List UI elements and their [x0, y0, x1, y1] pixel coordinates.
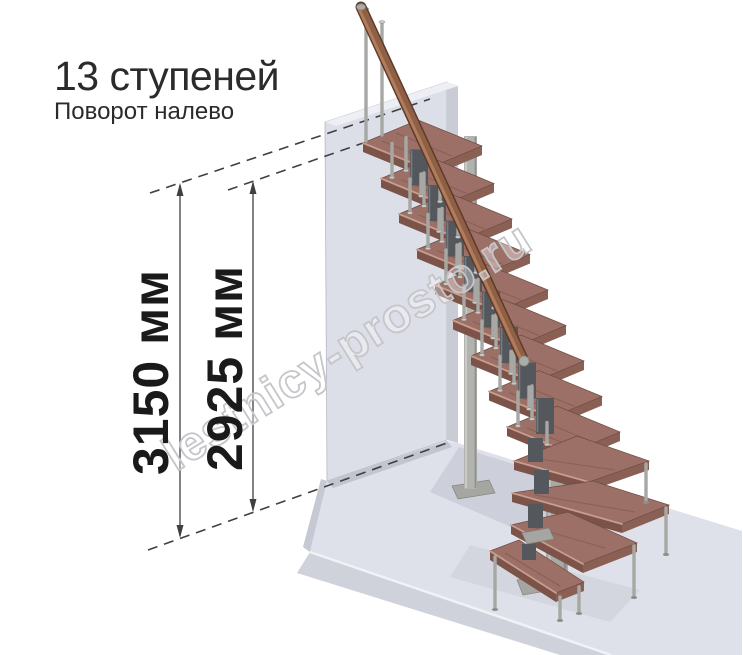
rod-foot — [472, 301, 477, 304]
rod-foot — [418, 195, 423, 198]
stair-diagram-canvas: lestnicy-prosto.ru 3150 мм 2925 мм 13 ст… — [0, 0, 743, 655]
spine-connector — [528, 504, 543, 528]
rod-foot — [526, 408, 531, 411]
rod-foot — [557, 619, 563, 622]
spine-connector — [522, 544, 536, 560]
rod-foot — [407, 212, 412, 215]
rod-foot — [497, 389, 502, 392]
post-cap — [379, 21, 385, 24]
handrail-top-cap — [357, 4, 366, 10]
arrowhead-down — [250, 499, 257, 512]
rod-foot — [436, 230, 441, 233]
rod-foot — [479, 354, 484, 357]
arrowhead-up — [177, 183, 184, 196]
rod-foot — [643, 501, 649, 504]
spine-connector — [536, 398, 554, 434]
dimension-label-overall: 3150 мм — [123, 269, 179, 475]
rod-foot — [421, 205, 426, 208]
rod-foot — [663, 553, 669, 556]
rod-foot — [529, 418, 534, 421]
rod-foot — [515, 425, 520, 428]
rod-foot — [475, 311, 480, 314]
rod-foot — [508, 372, 513, 375]
rod-foot — [425, 247, 430, 250]
page-title: 13 ступеней — [54, 53, 279, 99]
rod-foot — [437, 200, 442, 203]
rod-foot — [403, 169, 408, 172]
rod-foot — [576, 612, 582, 615]
dimension-label-flight: 2925 мм — [197, 265, 253, 471]
rod-foot — [511, 382, 516, 385]
rod-foot — [455, 236, 460, 239]
rod-foot — [461, 318, 466, 321]
rod-foot — [631, 596, 637, 599]
rod-foot — [389, 176, 394, 179]
spine-connector — [528, 438, 543, 462]
spine-connector — [534, 470, 549, 494]
handrail-end-cap — [519, 356, 529, 366]
rod-foot — [490, 337, 495, 340]
rod-foot — [492, 608, 498, 611]
page-subtitle: Поворот налево — [54, 98, 234, 125]
rod-foot — [544, 443, 549, 446]
rod-foot — [493, 347, 498, 350]
rod-foot — [439, 240, 444, 243]
stair-illustration: lestnicy-prosto.ru 3150 мм 2925 мм 13 ст… — [0, 0, 743, 655]
arrowhead-down — [177, 525, 184, 538]
